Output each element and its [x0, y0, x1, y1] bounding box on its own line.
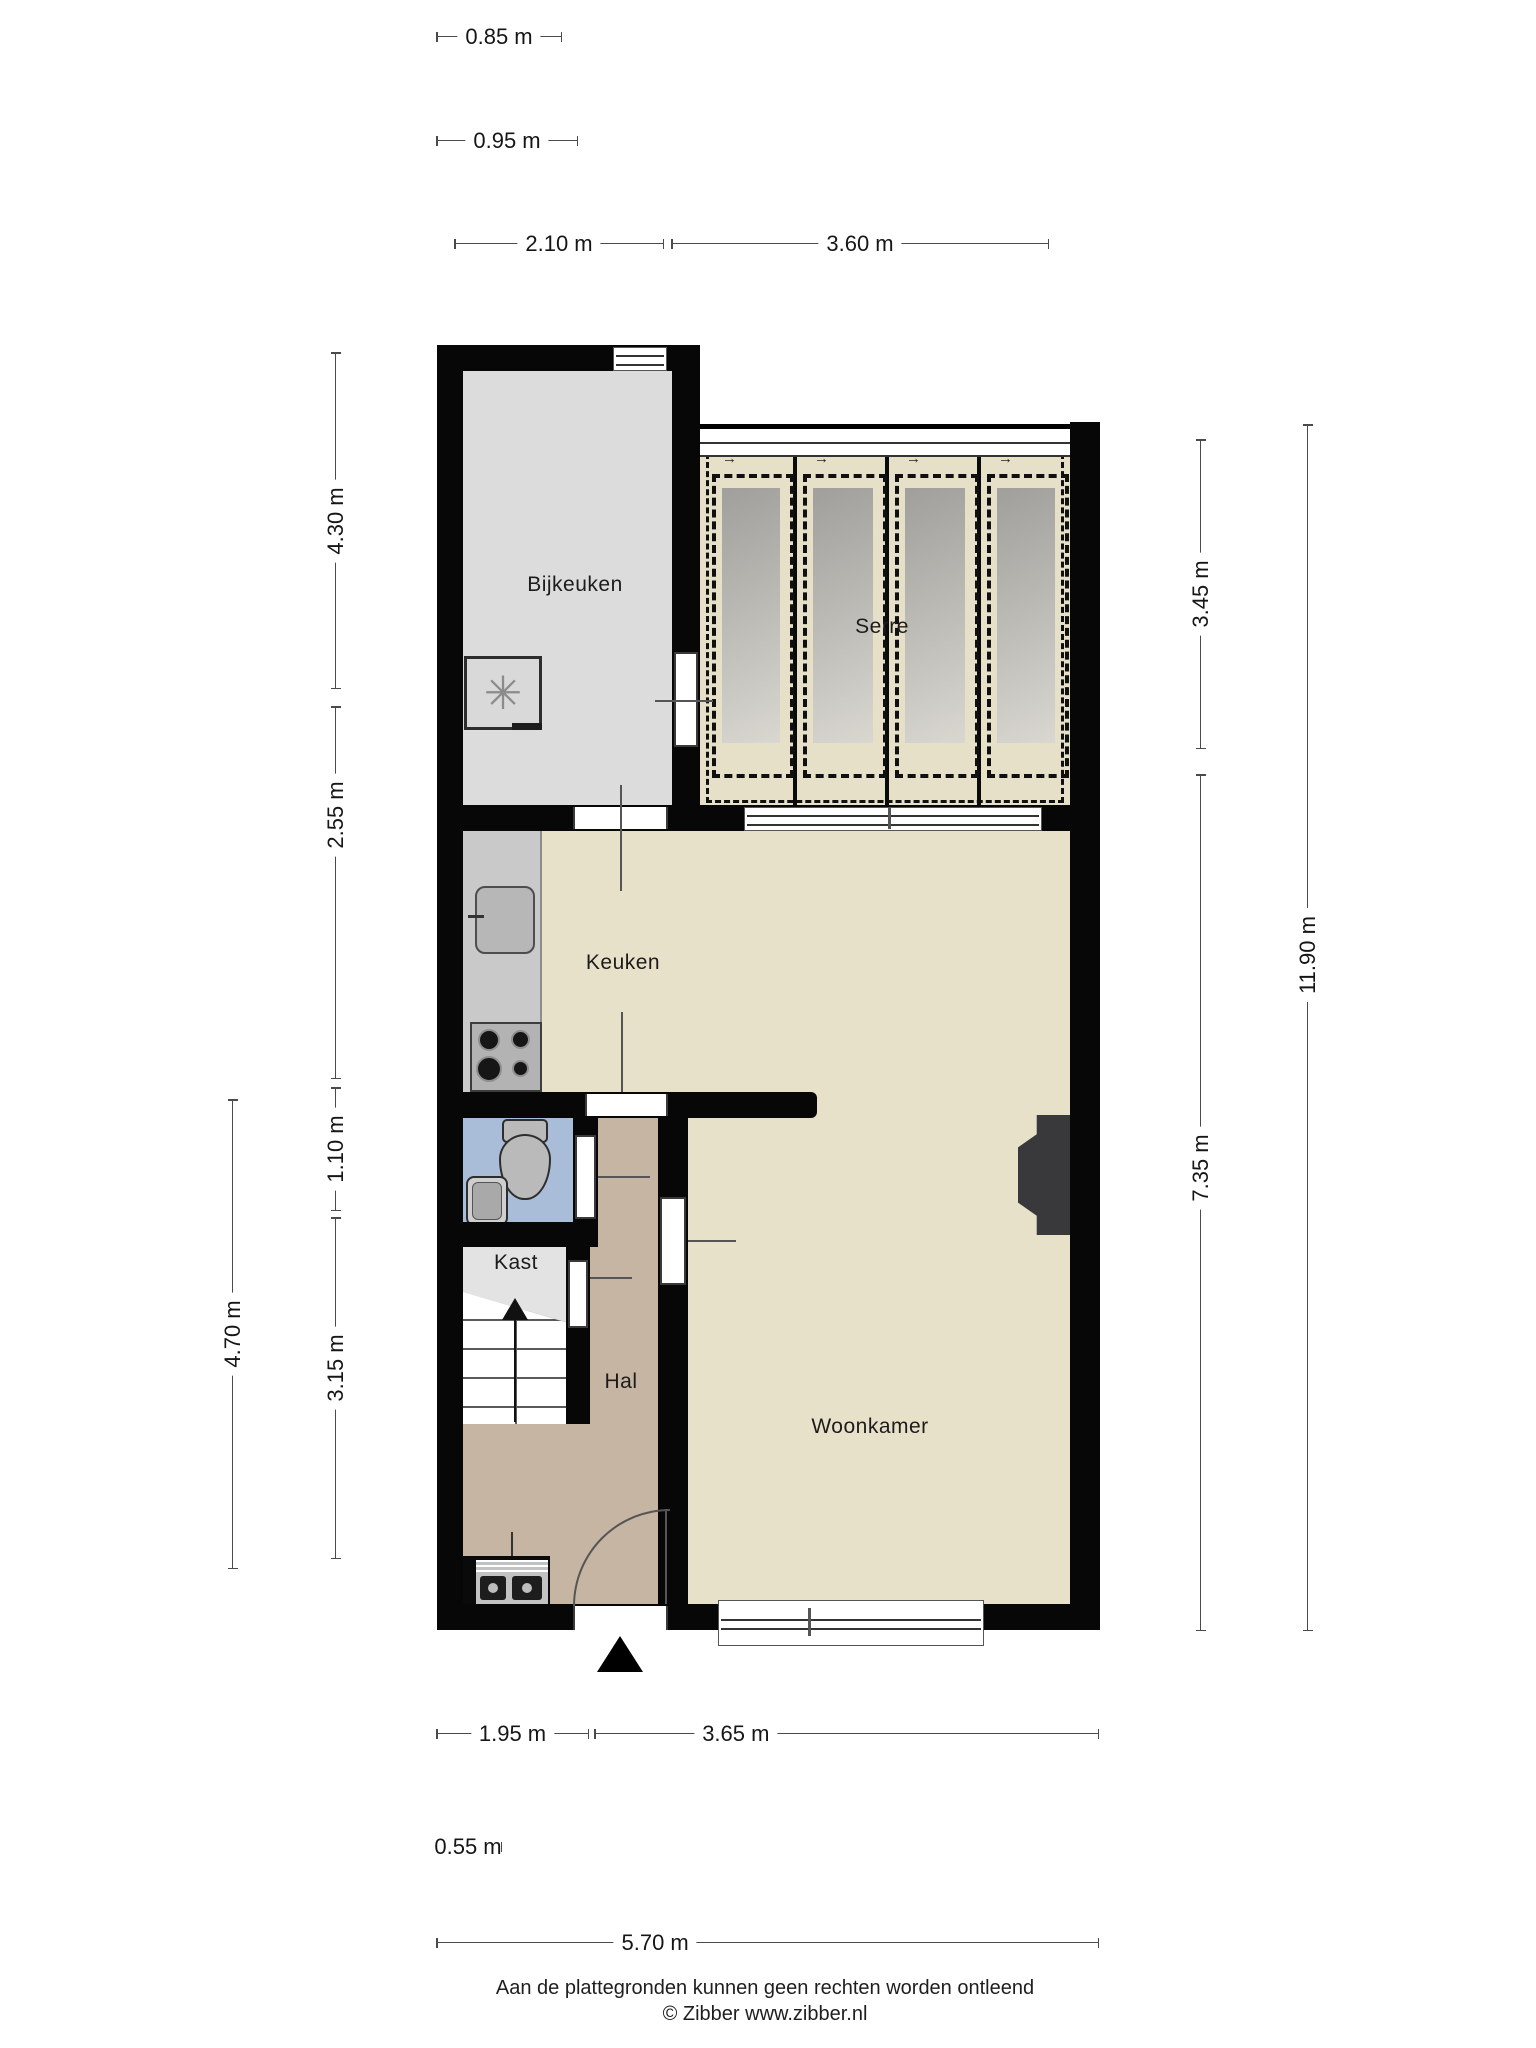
dimension-1-10m: 1.10 m — [335, 1088, 336, 1210]
room-label-keuken: Keuken — [586, 951, 660, 975]
dimension-4-70m: 4.70 m — [232, 1100, 233, 1568]
dimension-0-55m: 0.55 m — [435, 1846, 501, 1847]
dimension-label: 0.95 m — [465, 128, 548, 154]
stairs-direction-line — [514, 1318, 516, 1422]
burner-icon — [512, 1060, 529, 1077]
dimension-3-60m: 3.60 m — [672, 243, 1048, 244]
wall-left — [437, 345, 463, 1630]
room-label-hal: Hal — [604, 1370, 637, 1394]
dimension-label: 11.90 m — [1294, 908, 1322, 1002]
footer-disclaimer: Aan de plattegronden kunnen geen rechten… — [496, 1977, 1034, 2000]
front-door-leaf — [665, 1509, 667, 1604]
door-swing-line — [620, 785, 622, 891]
dimension-3-65m: 3.65 m — [595, 1733, 1098, 1734]
bijkeuken-top-window — [613, 347, 667, 371]
dimension-label: 1.95 m — [471, 1721, 554, 1747]
meter-box-icon — [512, 1576, 542, 1600]
room-label-kast: Kast — [494, 1251, 538, 1275]
door-swing-line — [621, 1012, 623, 1092]
dimension-0-85m: 0.85 m — [437, 36, 561, 37]
faucet-icon — [468, 915, 484, 918]
dimension-label: 3.45 m — [1187, 552, 1215, 635]
wall-bijkeuken-right — [672, 345, 700, 831]
dimension-3-45m: 3.45 m — [1200, 440, 1201, 748]
burner-icon — [478, 1029, 500, 1051]
dimension-label: 7.35 m — [1187, 1127, 1215, 1210]
dimension-label: 3.15 m — [322, 1326, 350, 1409]
dimension-label: 4.70 m — [219, 1292, 247, 1375]
wall-right — [1070, 422, 1100, 1630]
stairs-up-arrow-icon — [502, 1298, 528, 1320]
meter-connection-line — [511, 1532, 513, 1556]
dimension-1-95m: 1.95 m — [437, 1733, 588, 1734]
dimension-2-10m: 2.10 m — [455, 243, 663, 244]
dimension-label: 0.85 m — [457, 24, 540, 50]
dimension-label: 2.10 m — [517, 231, 600, 257]
toilet-door — [575, 1135, 596, 1219]
room-label-bijkeuken: Bijkeuken — [527, 573, 623, 597]
burner-icon — [511, 1030, 530, 1049]
dimension-5-70m: 5.70 m — [437, 1942, 1098, 1943]
dimension-label: 4.30 m — [322, 479, 350, 562]
entrance-arrow-icon — [597, 1636, 643, 1672]
door-swing-line — [590, 1277, 632, 1279]
kitchen-sink-icon — [475, 886, 535, 954]
washer-symbol: ✳ — [484, 670, 523, 716]
dimension-label: 0.55 m — [426, 1834, 509, 1860]
dimension-3-15m: 3.15 m — [335, 1218, 336, 1558]
toilet-sink-icon — [466, 1176, 508, 1226]
room-label-woonkamer: Woonkamer — [811, 1415, 928, 1439]
dimension-label: 3.60 m — [818, 231, 901, 257]
door-swing-line — [598, 1176, 650, 1178]
keuken-hal-door — [585, 1094, 668, 1116]
door-swing-line — [655, 700, 713, 702]
dimension-label: 2.55 m — [322, 773, 350, 856]
serre-glass-pane — [905, 488, 965, 743]
window-line — [700, 442, 1070, 444]
serre-keuken-window — [744, 807, 1042, 831]
washing-machine-icon: ✳ — [464, 656, 542, 730]
footer-copyright: © Zibber www.zibber.nl — [663, 2003, 868, 2026]
window-mullion — [888, 807, 891, 829]
room-label-serre: Serre — [855, 615, 909, 639]
hal-woonkamer-door — [660, 1197, 686, 1285]
serre-glass-pane — [997, 488, 1055, 743]
dimension-label: 3.65 m — [694, 1721, 777, 1747]
serre-top-window — [700, 424, 1070, 457]
woonkamer-bottom-window — [718, 1600, 984, 1646]
front-door — [573, 1606, 668, 1630]
dimension-0-95m: 0.95 m — [437, 140, 577, 141]
dimension-label: 5.70 m — [613, 1930, 696, 1956]
wall-toilet-bottom — [463, 1222, 598, 1247]
kast-door — [568, 1260, 588, 1328]
dimension-4-30m: 4.30 m — [335, 353, 336, 688]
burner-icon — [476, 1056, 502, 1082]
window-mullion — [808, 1608, 811, 1636]
serre-glass-pane — [722, 488, 780, 743]
dimension-7-35m: 7.35 m — [1200, 775, 1201, 1630]
dimension-2-55m: 2.55 m — [335, 707, 336, 1078]
floorplan-canvas: → → → → ✳ — [0, 0, 1536, 2048]
dimension-11-90m: 11.90 m — [1307, 425, 1308, 1630]
meter-box-icon — [480, 1576, 506, 1600]
dimension-label: 1.10 m — [322, 1107, 350, 1190]
door-swing-line — [688, 1240, 736, 1242]
